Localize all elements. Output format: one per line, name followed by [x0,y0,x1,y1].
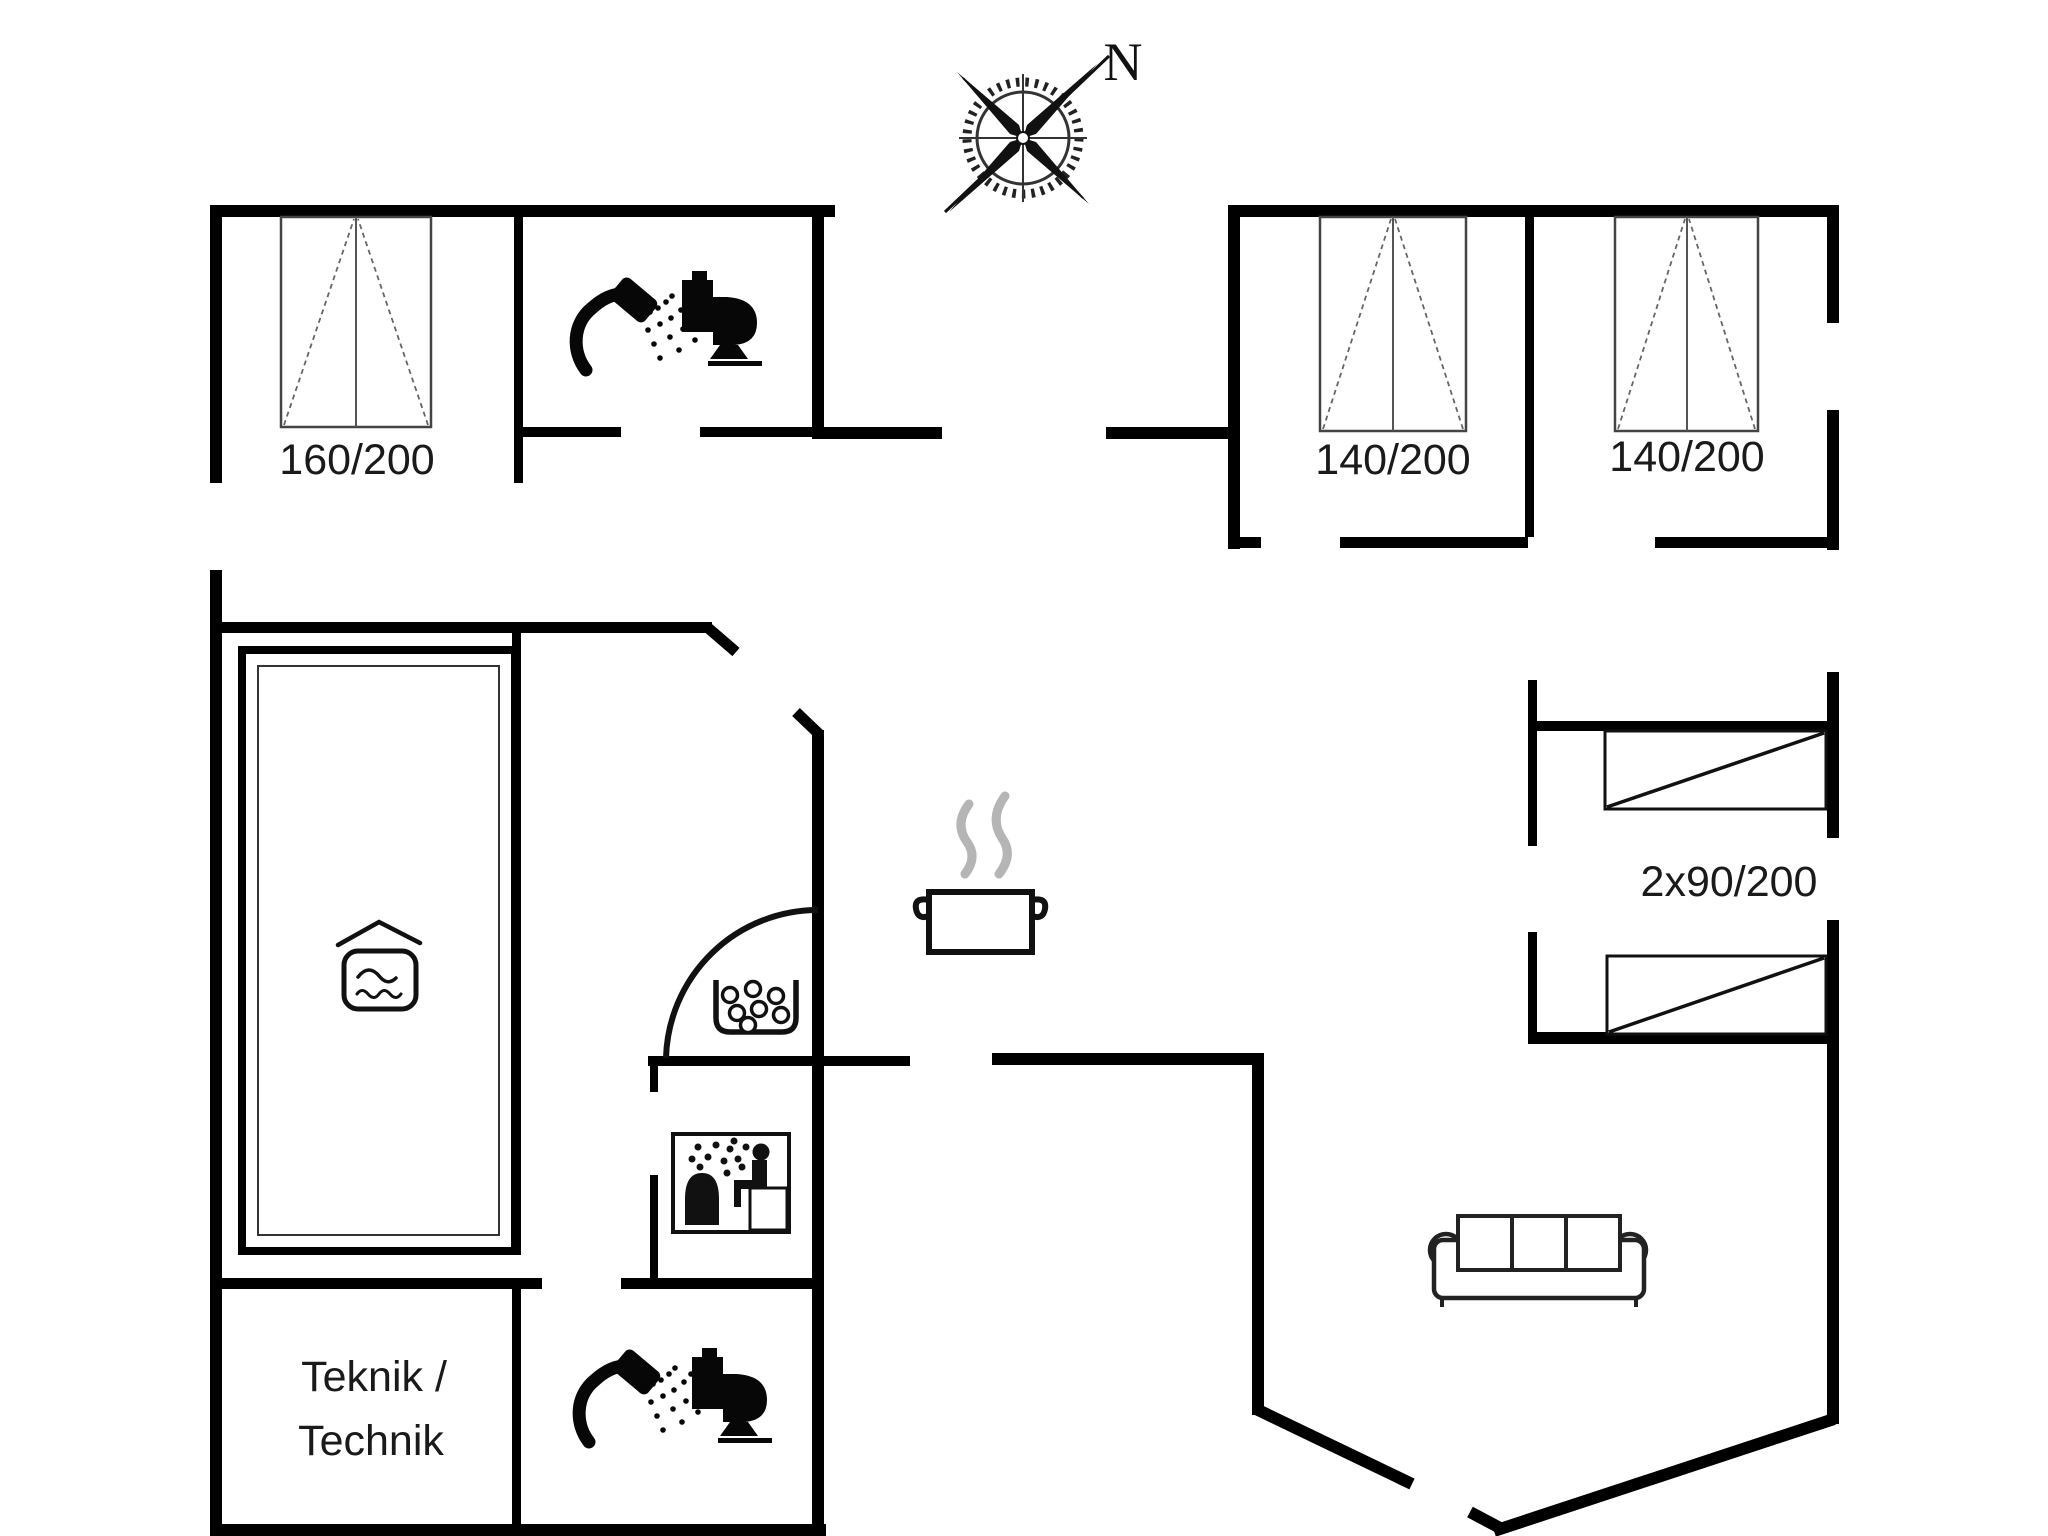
wall-segment [1827,672,1839,838]
pot-steam-icon [916,796,1045,952]
wall-segment [218,622,712,633]
toilet-icon [682,271,762,366]
wall-segment [1340,537,1528,548]
wall-segment [210,205,222,483]
toilet-icon [692,1348,772,1443]
wall-segment [210,1524,826,1536]
wall-segment [648,1056,910,1066]
wall-segment [824,427,942,439]
wall-segment [1528,680,1537,846]
wall-segment [1235,205,1839,217]
bathroom-bottom [579,1347,772,1443]
technical-room-line2: Technik [298,1417,444,1465]
wall-segment [1827,410,1839,550]
bathroom-top [576,271,762,370]
bed-size-label: 140/200 [1315,436,1470,484]
pool [242,650,515,1251]
wall-segment [210,570,222,1536]
wall-segment [1655,537,1839,548]
pool-waves-icon [338,922,420,1009]
wall-segment [707,627,736,652]
bed-size-label: 140/200 [1609,433,1764,481]
wall-segment [700,427,818,437]
wall-segment [1106,427,1236,439]
wall-segment [514,217,523,483]
floor-plan-canvas: 160/200 140/200 140/200 2x90/200 Teknik … [0,0,2048,1536]
wall-segment [621,1278,824,1289]
wall-segment [650,1175,658,1285]
bed-master: 160/200 [279,217,434,484]
wall-segment [1494,1419,1834,1531]
north-label: N [1104,32,1143,92]
wall-segment [210,205,835,217]
wall-segment [521,427,621,437]
technical-room-label: Teknik / Technik [298,1353,447,1465]
bed-double-2: 140/200 [1609,217,1764,481]
bubbles-icon [716,980,796,1033]
sofa-icon [1430,1216,1646,1307]
wall-segment [1252,1053,1264,1415]
wall-segment [1827,920,1839,1424]
wall-segment [650,1062,658,1092]
walls [210,205,1839,1536]
bunk-size-label: 2x90/200 [1641,858,1818,906]
wall-segment [812,205,824,439]
sauna-icon [673,1134,789,1232]
wall-segment [1528,932,1537,1042]
bed-size-label: 160/200 [279,436,434,484]
bed-double-1: 140/200 [1315,217,1470,484]
floor-plan: 160/200 140/200 140/200 2x90/200 Teknik … [0,0,2048,1536]
compass-rose-icon [945,56,1109,212]
wall-segment [1235,537,1261,548]
wall-segment [1827,205,1839,323]
wall-segment [218,1278,542,1289]
wall-segment [812,730,824,1536]
technical-room-line1: Teknik / [301,1353,447,1401]
wall-segment [1256,1409,1412,1484]
wall-segment [1228,205,1240,549]
wall-segment [992,1053,1264,1065]
bunk-beds: 2x90/200 [1605,731,1826,1034]
wall-segment [512,1283,521,1524]
wall-segment [1525,217,1534,537]
